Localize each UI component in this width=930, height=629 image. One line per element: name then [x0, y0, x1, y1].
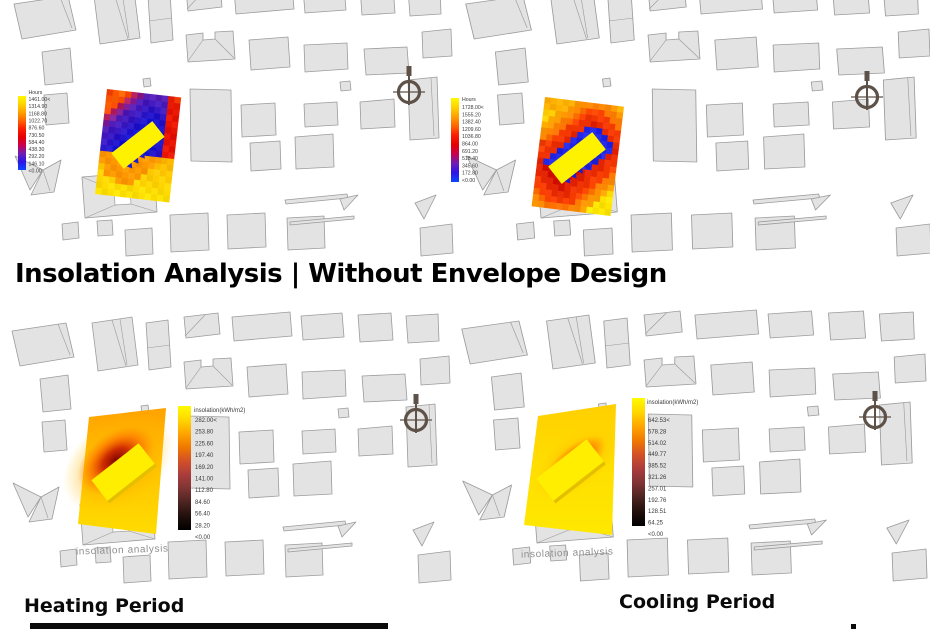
legend-tick: 1022.70	[29, 118, 48, 124]
legend-tick: 112.80	[195, 488, 214, 494]
legend-tick: 253.80	[195, 430, 214, 436]
legend-tick: 172.80	[462, 171, 478, 177]
map-insolation-cooling: insolation(kWh/m2)642.53<578.28514.02449…	[445, 305, 930, 590]
legend-tick: 146.10	[29, 161, 45, 167]
legend-tick: 141.00	[195, 477, 214, 483]
legend-tick: 345.60	[462, 163, 478, 169]
map-sunlight-hours-right: Hours1728.00<1555.201382.401209.601036.8…	[445, 0, 930, 258]
legend-tick: <0.00	[648, 532, 664, 538]
legend-tick: 578.28	[648, 429, 667, 435]
legend-tick: 169.20	[195, 465, 214, 471]
legend-tick: 257.01	[648, 486, 667, 492]
legend-tick: 321.26	[648, 475, 667, 481]
legend-tick: <0.00	[29, 169, 42, 175]
cropped-next-section-dot	[851, 624, 856, 629]
heating-period-label: Heating Period	[24, 595, 184, 617]
map-sunlight-hours-left: Hours1461.00<1314.901168.801022.70876.60…	[0, 0, 465, 258]
city-buildings	[466, 0, 930, 256]
legend-tick: 864.00	[462, 142, 478, 148]
legend-tick: 438.30	[29, 147, 45, 153]
legend-tick: 730.50	[29, 133, 45, 139]
legend-tick: 1036.80	[462, 134, 481, 140]
legend-tick: 225.60	[195, 441, 214, 447]
map-insolation-heating: insolation(kWh/m2)282.00<253.80225.60197…	[0, 305, 465, 590]
city-buildings	[462, 310, 927, 581]
legend-title: Hours	[29, 90, 43, 96]
legend-tick: 192.76	[648, 498, 667, 504]
city-buildings	[14, 0, 453, 256]
legend-tick: 1314.90	[29, 104, 48, 110]
legend-tick: 1461.00<	[29, 97, 51, 103]
legend-tick: 691.20	[462, 149, 478, 155]
legend-tick: 28.20	[195, 523, 211, 529]
legend-tick: 1209.60	[462, 127, 481, 133]
legend-tick: <0.00	[195, 535, 211, 541]
legend-tick: 1555.20	[462, 112, 481, 118]
cropped-next-section-text	[30, 623, 388, 629]
legend-tick: 449.77	[648, 452, 667, 458]
report-page: Hours1461.00<1314.901168.801022.70876.60…	[0, 0, 930, 629]
legend-tick: 584.40	[29, 140, 45, 146]
legend-tick: 514.02	[648, 441, 667, 447]
legend-tick: 1168.80	[29, 111, 47, 117]
legend-tick: 518.40	[462, 156, 478, 162]
legend-hours: Hours1461.00<1314.901168.801022.70876.60…	[18, 90, 50, 175]
legend-tick: 385.52	[648, 464, 667, 470]
legend-tick: 84.60	[195, 500, 211, 506]
legend-title: insolation(kWh/m2)	[194, 408, 245, 414]
page-title: Insolation Analysis | Without Envelope D…	[15, 259, 667, 289]
legend-tick: 1382.40	[462, 120, 481, 126]
legend-tick: 642.53<	[648, 418, 670, 424]
legend-tick: 292.20	[29, 154, 45, 160]
legend-title: insolation(kWh/m2)	[647, 400, 698, 406]
legend-tick: <0.00	[462, 178, 475, 184]
legend-tick: 128.51	[648, 509, 667, 515]
legend-tick: 1728.00<	[462, 105, 484, 111]
legend-tick: 876.60	[29, 126, 45, 132]
legend-tick: 64.25	[648, 521, 664, 527]
legend-tick: 56.40	[195, 512, 211, 518]
cooling-period-label: Cooling Period	[619, 591, 775, 613]
legend-tick: 197.40	[195, 453, 214, 459]
legend-title: Hours	[462, 97, 476, 103]
legend-tick: 282.00<	[195, 418, 217, 424]
